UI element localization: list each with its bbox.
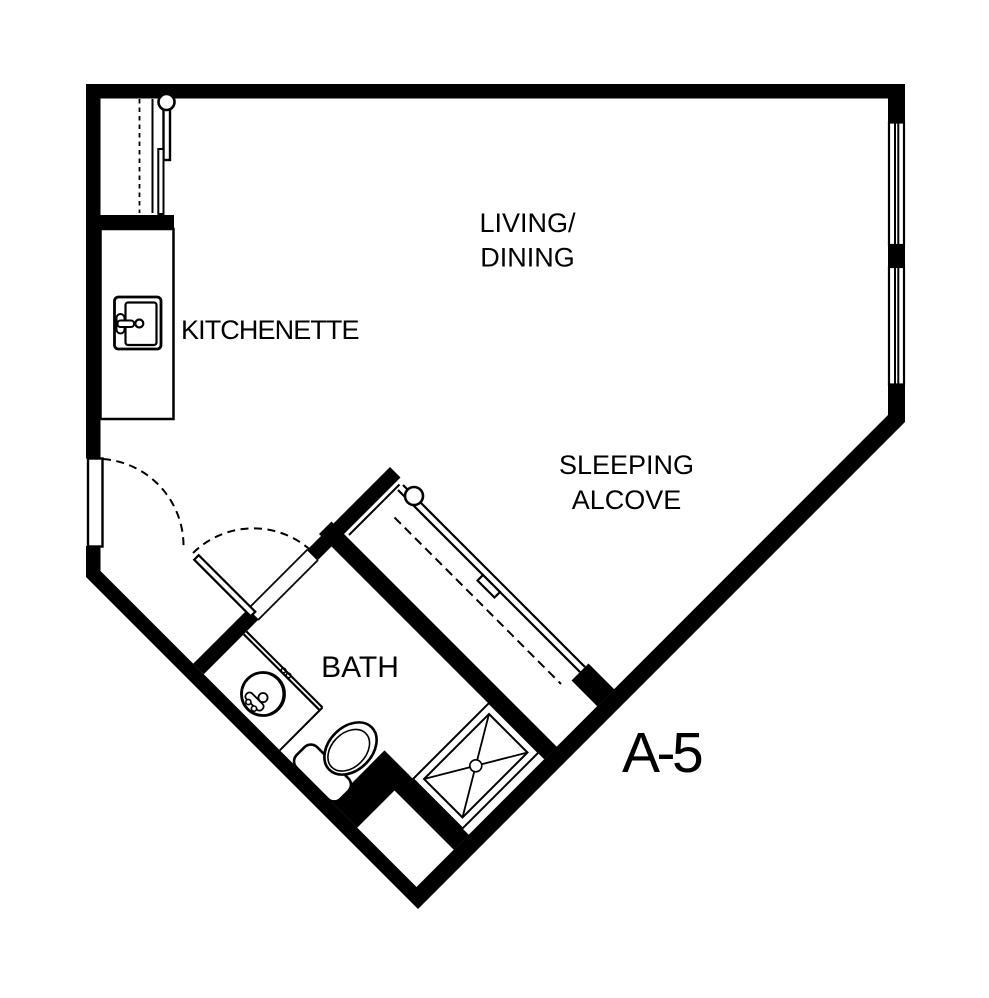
svg-text:ALCOVE: ALCOVE — [572, 485, 682, 515]
svg-text:A-5: A-5 — [622, 721, 702, 785]
svg-text:SLEEPING: SLEEPING — [559, 450, 694, 480]
svg-text:LIVING/: LIVING/ — [479, 208, 576, 238]
svg-text:BATH: BATH — [321, 651, 399, 684]
svg-text:KITCHENETTE: KITCHENETTE — [181, 315, 359, 345]
svg-text:DINING: DINING — [480, 243, 575, 273]
